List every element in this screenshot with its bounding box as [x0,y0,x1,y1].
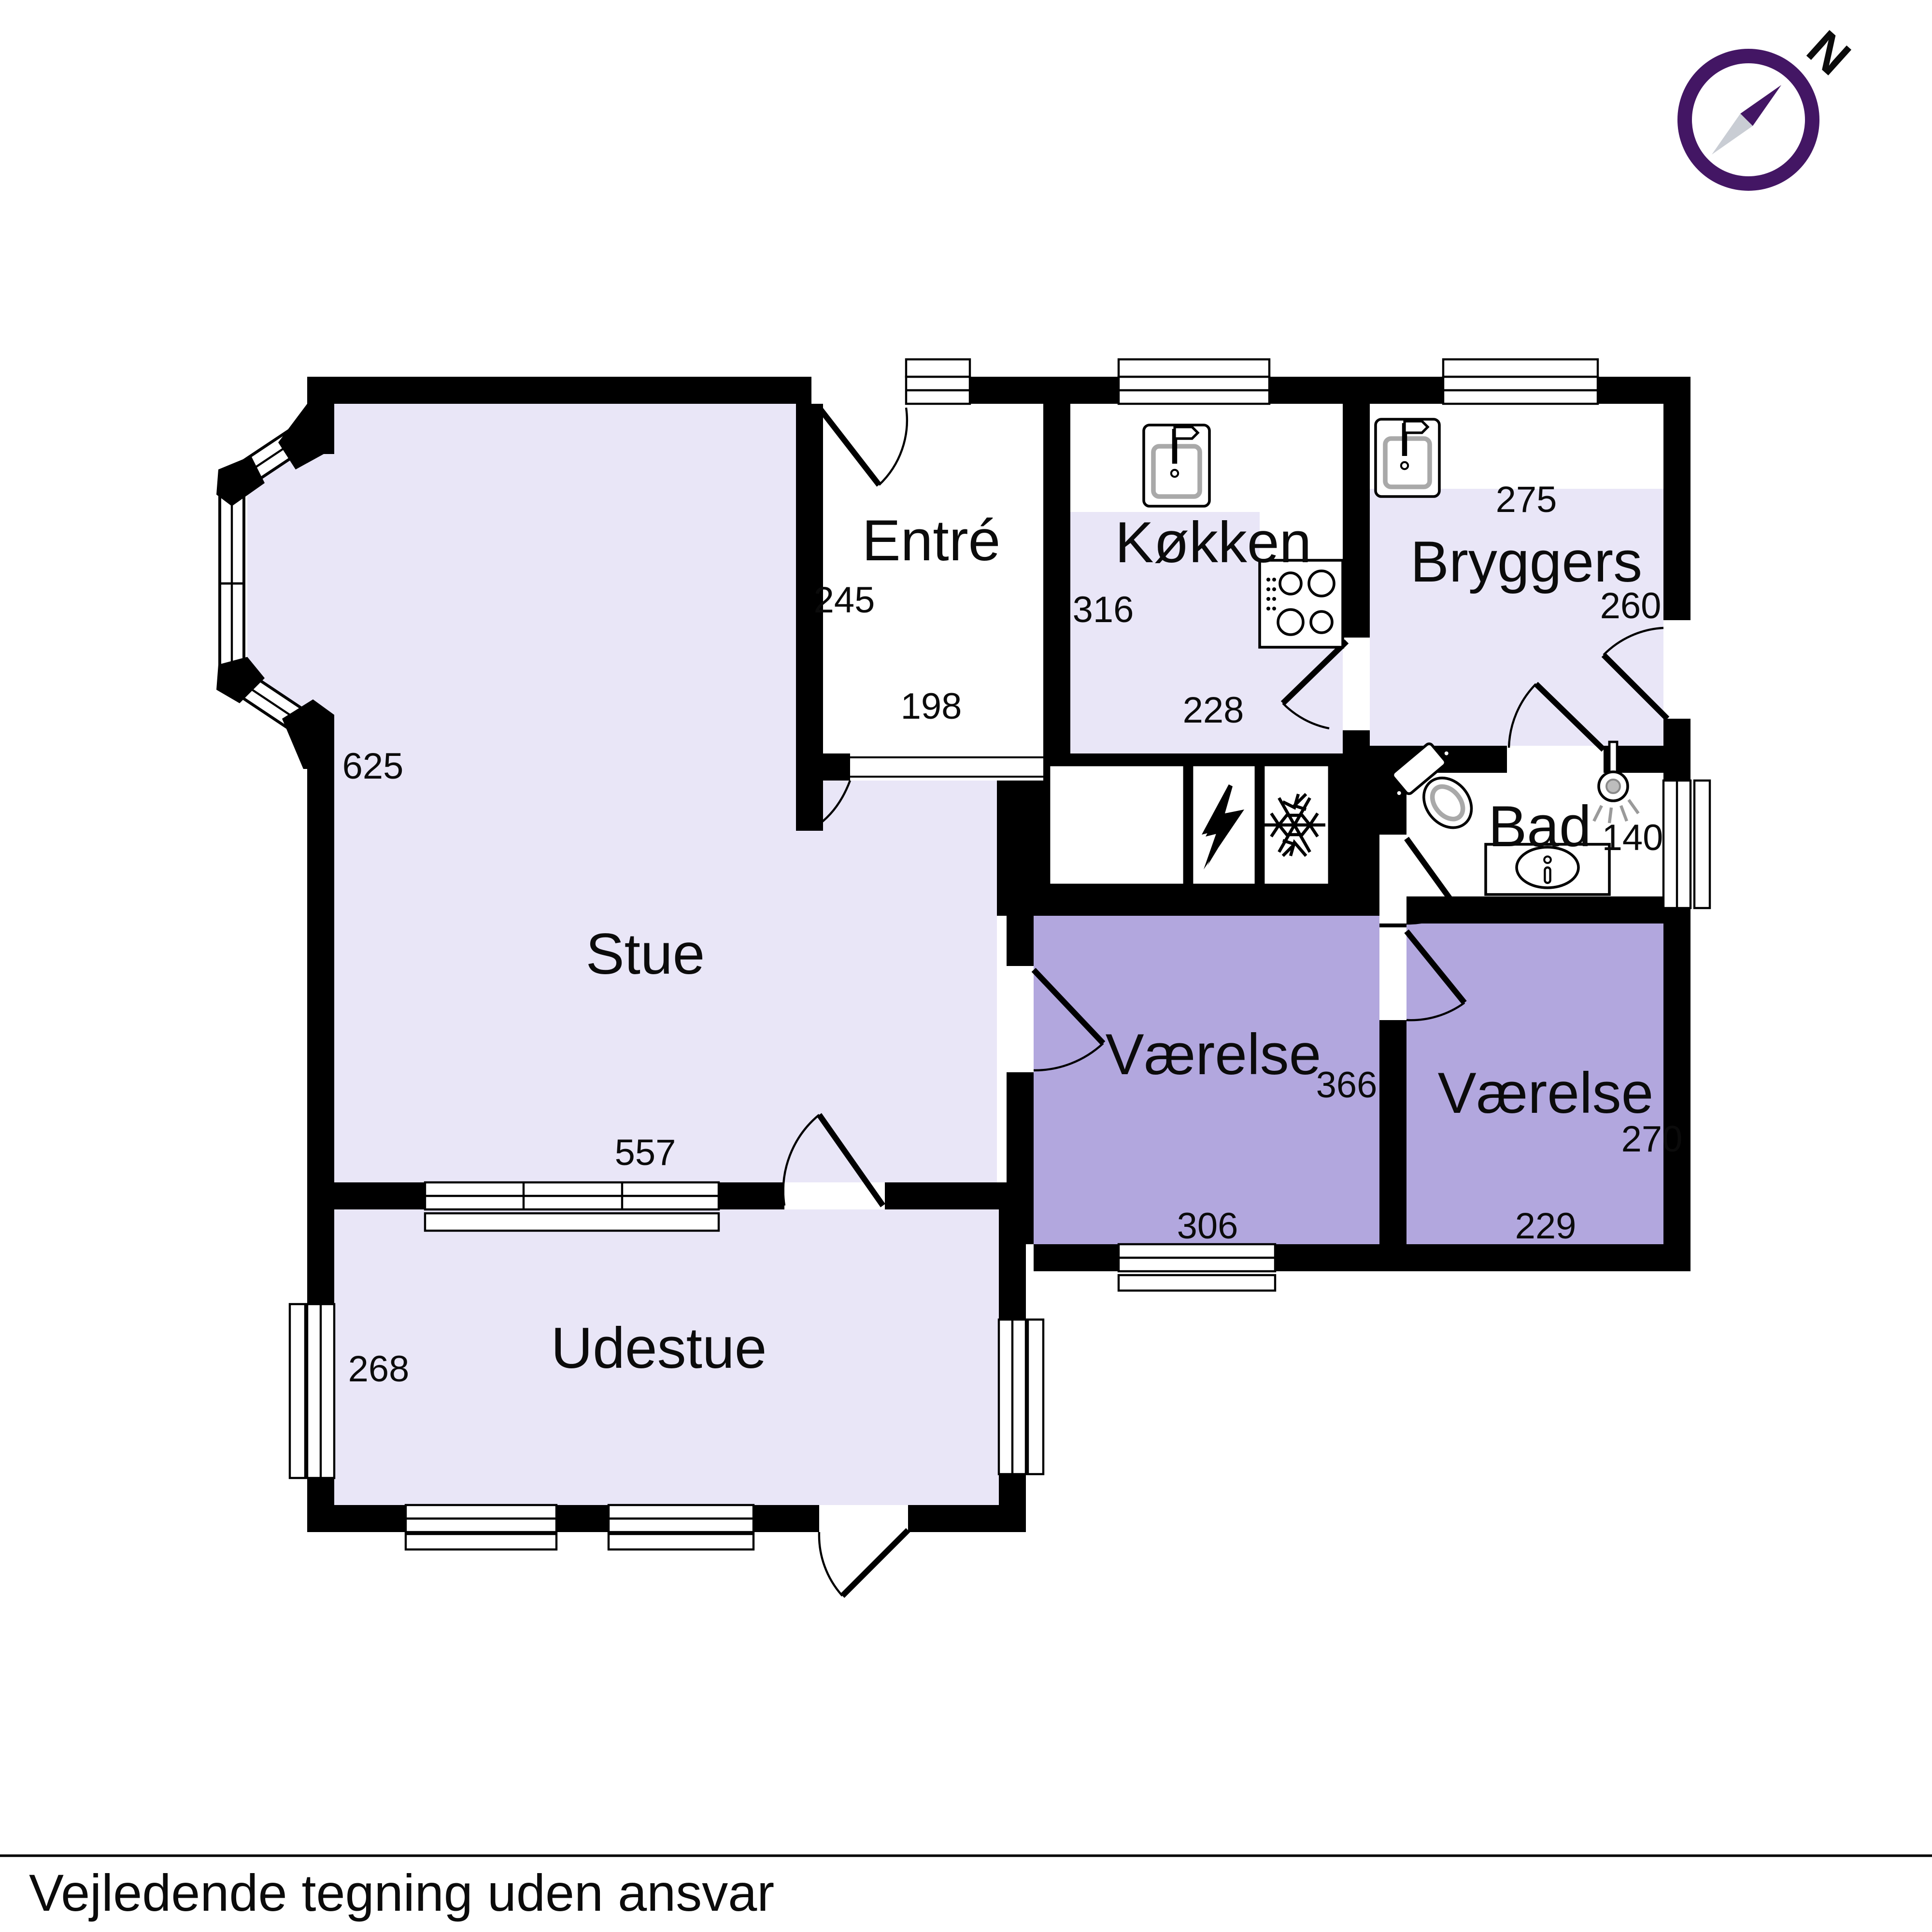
dim-vaerelse1-width: 306 [1177,1206,1238,1247]
cabinet-box [1049,765,1184,885]
sink-icon-kokken [1144,425,1209,506]
dim-vaerelse2-width: 229 [1515,1206,1577,1247]
window-bryggers-top [1443,359,1598,404]
door-udestue-exterior [819,1530,908,1596]
room-label-vaerelse1: Værelse [1106,1022,1321,1087]
footer: Vejledende tegning uden ansvar [0,1856,1932,1922]
window-vaerelse1-bottom [1119,1244,1275,1291]
window-udestue-right [999,1320,1043,1474]
dim-udestue-height: 268 [348,1349,410,1390]
door-entry [819,408,907,485]
sink-icon-bryggers [1376,419,1439,497]
room-label-vaerelse2: Værelse [1438,1061,1654,1125]
dim-vaerelse1-height: 366 [1316,1065,1378,1106]
dim-bryggers-height: 260 [1600,585,1662,626]
window-udestue-bottom-2 [609,1505,753,1549]
room-label-bad: Bad [1488,794,1591,859]
floor-plan-page: N Stue 625 557 Entré 245 198 Køkken 316 … [0,0,1932,1932]
window-kokken-top [1119,359,1269,404]
compass-n-label: N [1796,20,1861,86]
dim-kokken-height: 316 [1073,589,1134,630]
dim-stue-height: 625 [342,746,404,787]
dim-entre-height: 245 [814,580,875,621]
window-stue-bottom [425,1182,719,1231]
dim-vaerelse2-height: 270 [1621,1119,1683,1160]
window-udestue-bottom-1 [406,1505,556,1549]
window-entre-top [906,359,970,404]
floor-plan-canvas: N Stue 625 557 Entré 245 198 Køkken 316 … [0,0,1932,1932]
room-label-bryggers: Bryggers [1410,529,1642,594]
footer-disclaimer: Vejledende tegning uden ansvar [29,1863,774,1922]
dim-bryggers-width: 275 [1496,479,1557,520]
dim-bad-width: 140 [1602,817,1663,858]
dim-stue-width: 557 [615,1132,676,1173]
window-udestue-left [290,1304,334,1478]
window-bad-right [1663,781,1710,908]
compass: N [1685,20,1861,184]
room-label-udestue: Udestue [551,1316,767,1380]
dim-kokken-width: 228 [1183,690,1244,731]
room-label-entre: Entré [862,508,1001,573]
room-label-kokken: Køkken [1115,510,1312,575]
dim-entre-width: 198 [901,686,962,727]
room-label-stue: Stue [586,922,705,986]
